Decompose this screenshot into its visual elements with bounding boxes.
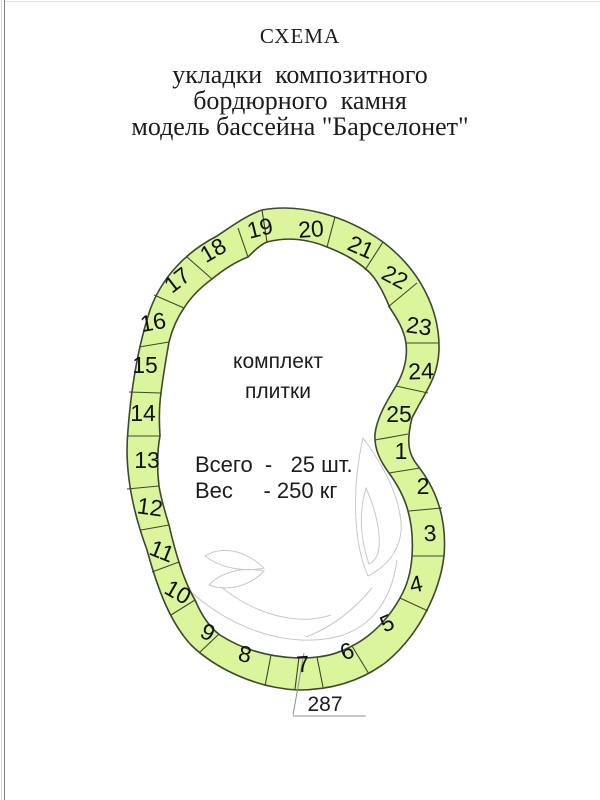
segment-number-12: 12 (136, 492, 165, 521)
segment-number-1: 1 (395, 438, 408, 464)
segment-number-23: 23 (405, 311, 434, 340)
stats-weight: Вес - 250 кг (195, 478, 353, 504)
segment-number-25: 25 (386, 401, 412, 427)
stats-label: Всего - 25 шт. Вес - 250 кг (195, 452, 353, 504)
segment-number-15: 15 (132, 352, 158, 378)
wave-short (221, 587, 331, 619)
petal-upper (205, 550, 264, 569)
page: СХЕМА укладки композитного бордюрного ка… (0, 0, 600, 800)
segment-number-13: 13 (134, 447, 160, 473)
stats-total: Всего - 25 шт. (195, 452, 353, 478)
kit-label-line-1: комплект (178, 347, 378, 377)
petal-lower (209, 569, 264, 588)
leaf-tail (306, 588, 372, 637)
kit-label: комплект плитки (178, 347, 378, 407)
kit-label-line-2: плитки (178, 377, 378, 407)
segment-number-16: 16 (138, 307, 168, 337)
dimension-label: 287 (307, 693, 342, 716)
segment-number-24: 24 (408, 358, 435, 385)
segment-number-14: 14 (130, 400, 156, 426)
segment-number-20: 20 (297, 215, 324, 243)
segment-number-2: 2 (417, 473, 430, 499)
segment-number-3: 3 (423, 520, 437, 547)
leaf-big-vein (361, 488, 379, 564)
segment-number-7: 7 (296, 651, 311, 678)
